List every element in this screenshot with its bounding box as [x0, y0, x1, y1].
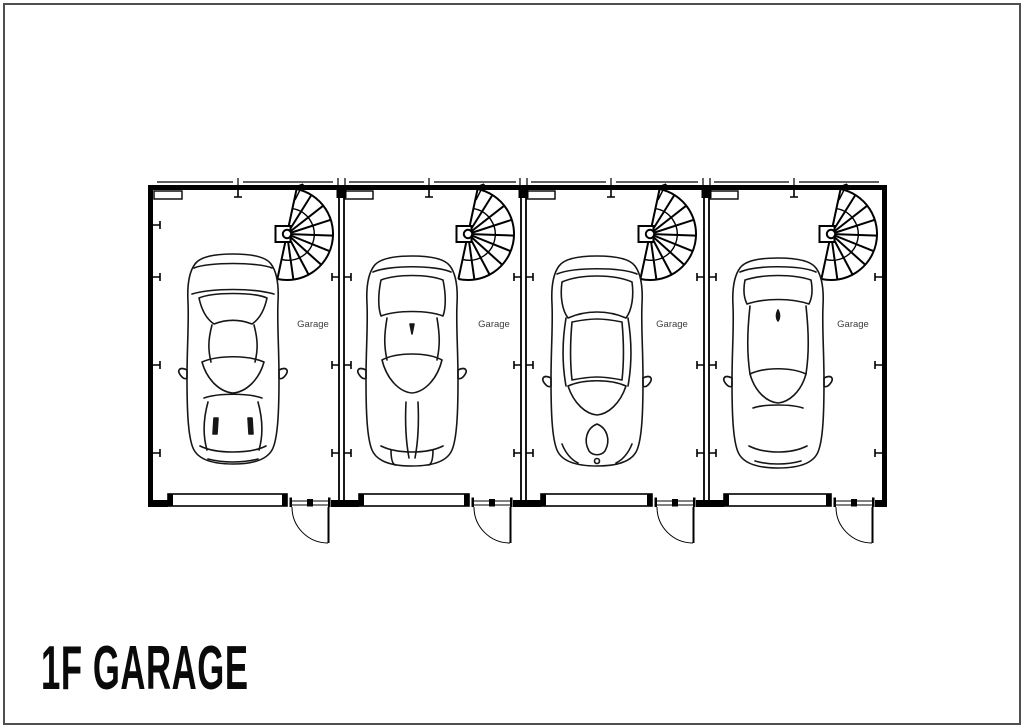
spiral-staircase-icon — [820, 184, 878, 280]
entry-door — [290, 498, 331, 544]
garage-label: Garage — [297, 319, 329, 330]
page-title: 1F GARAGE — [41, 638, 249, 700]
garage-label: Garage — [656, 319, 688, 330]
garage-bay-1: Garage — [168, 184, 333, 543]
garage-label: Garage — [478, 319, 510, 330]
top-wall-siding — [157, 178, 879, 186]
entry-door — [655, 498, 696, 544]
garage-label: Garage — [837, 319, 869, 330]
garage-bay-2: Garage — [358, 184, 514, 543]
garage-door — [724, 494, 831, 506]
spiral-staircase-icon — [639, 184, 697, 280]
spiral-staircase-icon — [276, 184, 334, 280]
garage-door — [541, 494, 652, 506]
entry-door — [472, 498, 513, 544]
garage-bay-3: Garage — [541, 184, 696, 543]
floor-plan-drawing: Garage Garage — [0, 0, 1024, 728]
garage-door — [359, 494, 469, 506]
car-icon — [724, 258, 832, 468]
garage-bay-4: Garage — [724, 184, 877, 543]
entry-door — [834, 498, 875, 544]
car-icon — [543, 256, 651, 466]
spiral-staircase-icon — [457, 184, 515, 280]
garage-door — [168, 494, 287, 506]
car-icon — [358, 256, 466, 466]
car-icon — [179, 254, 287, 464]
